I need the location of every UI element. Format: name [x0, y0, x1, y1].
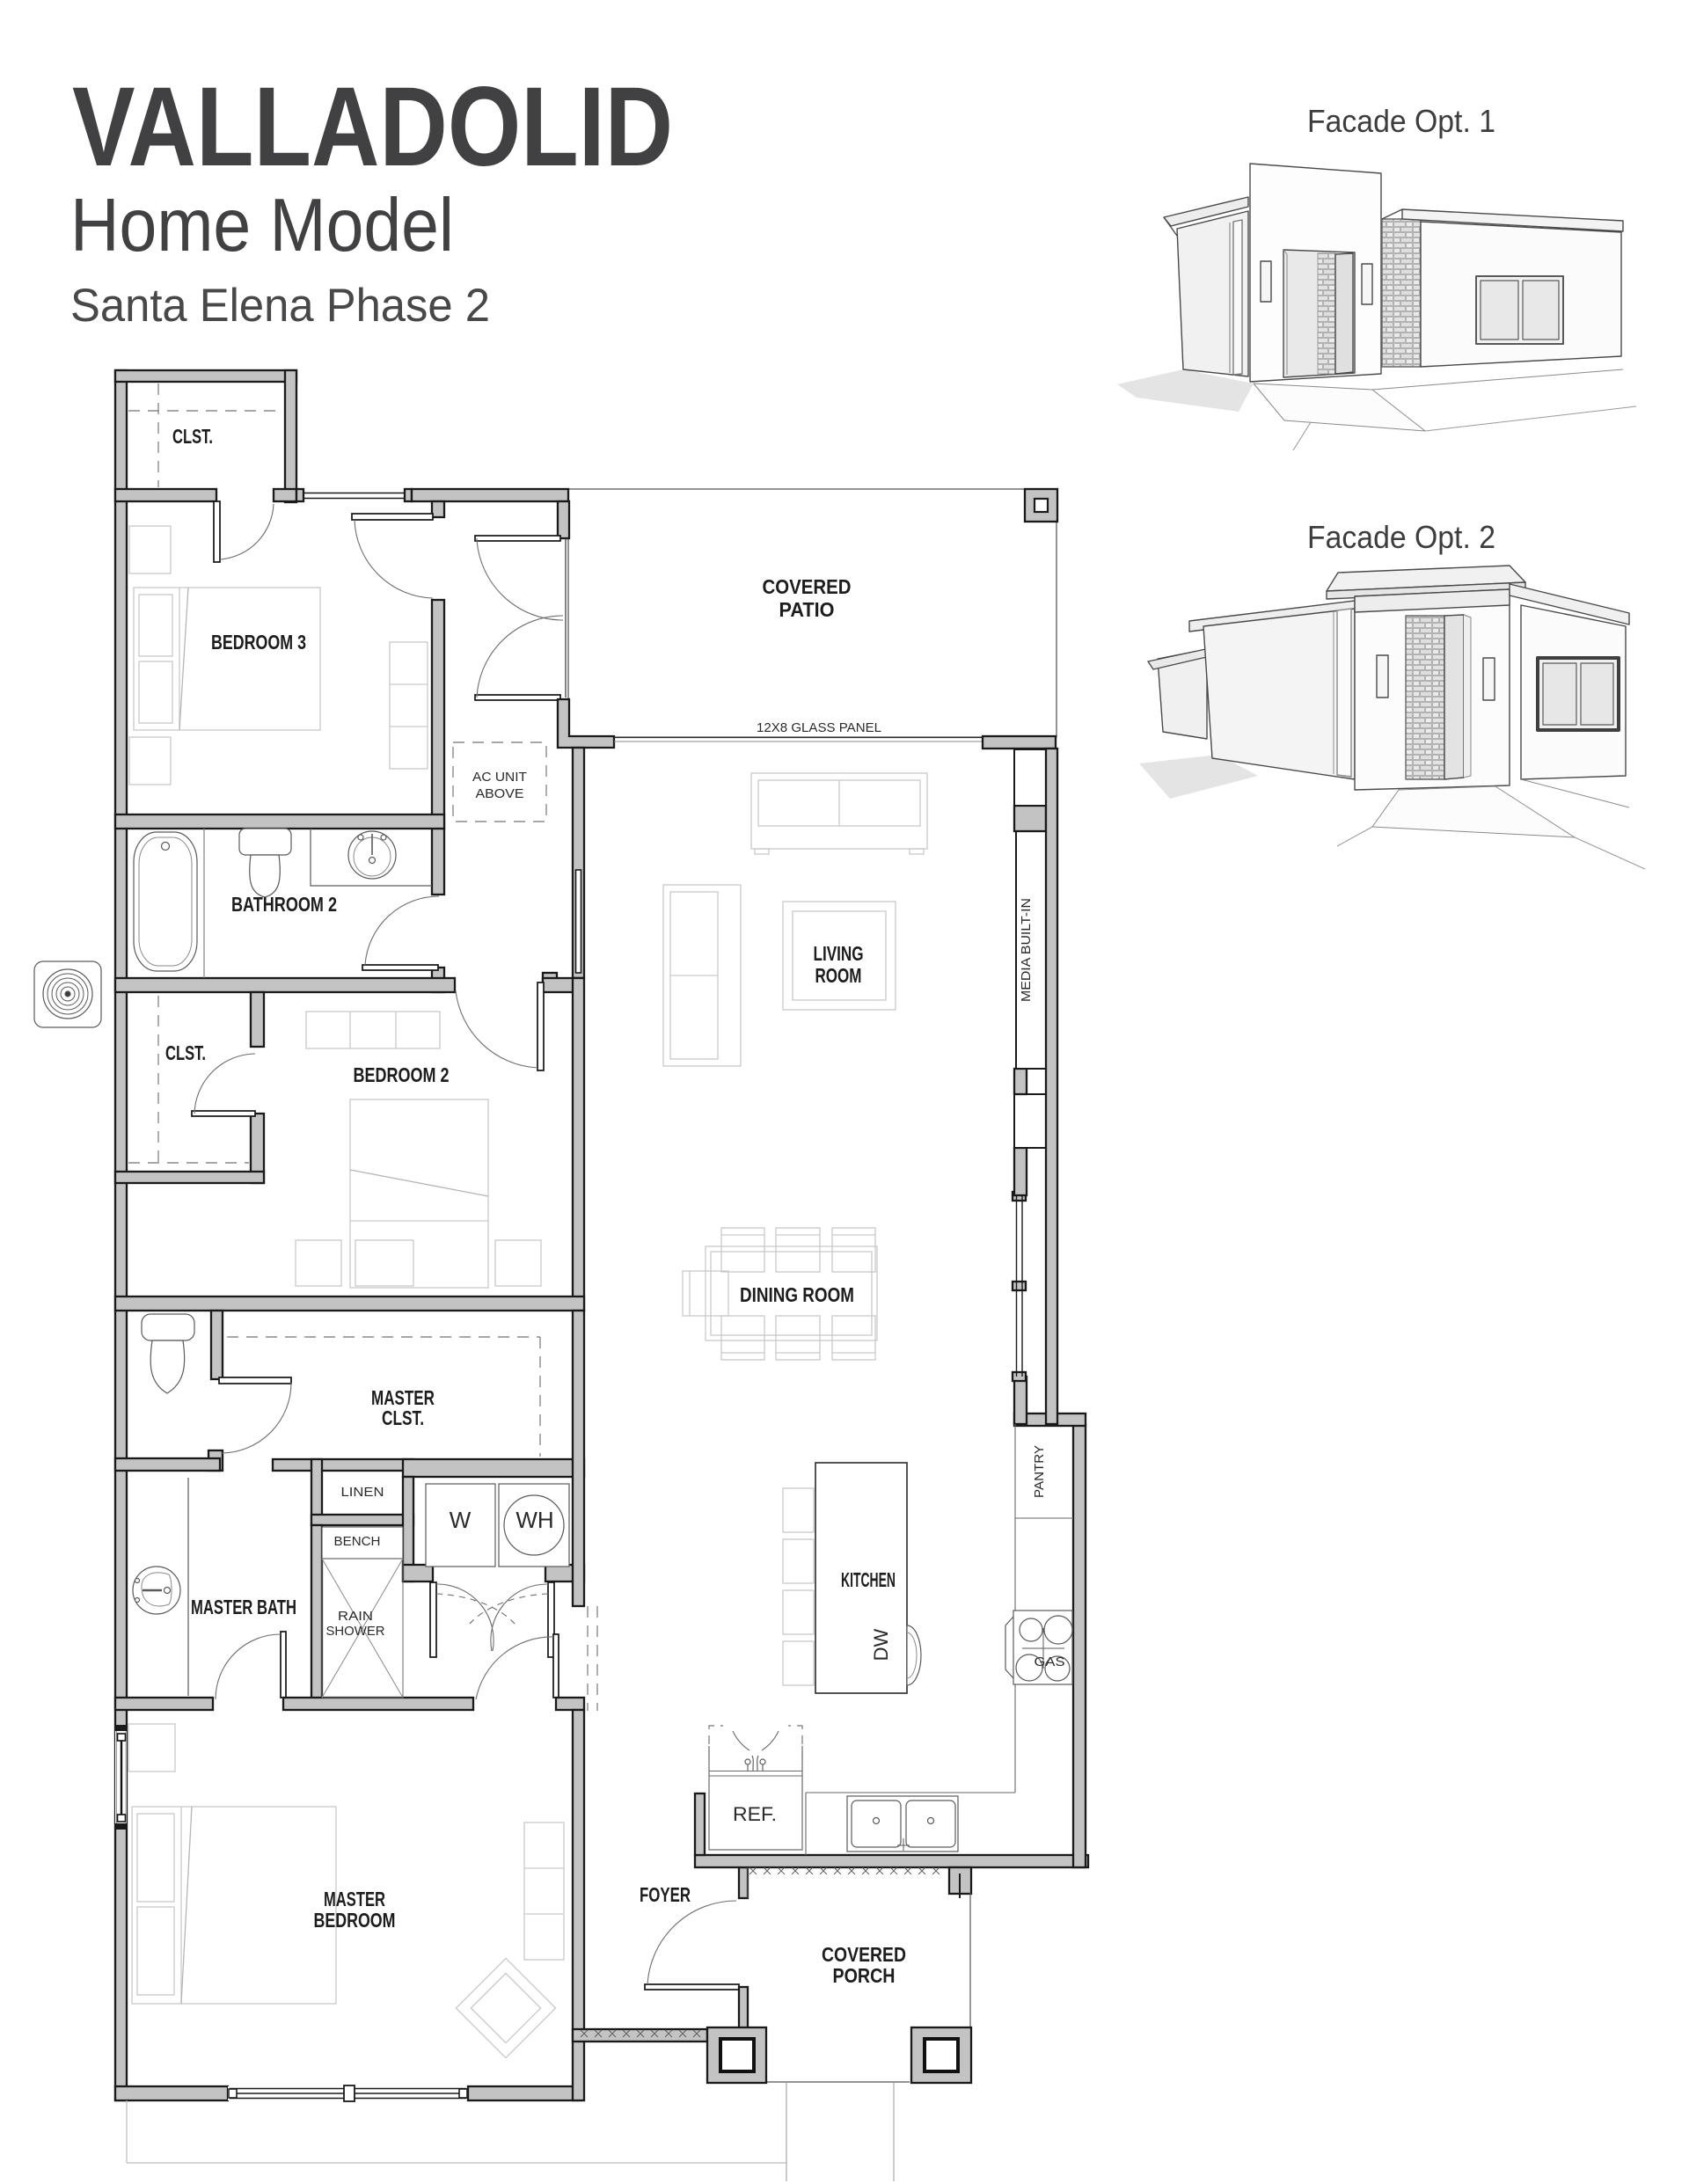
svg-text:CLST.: CLST. [165, 1041, 206, 1064]
svg-text:12X8 GLASS PANEL: 12X8 GLASS PANEL [757, 720, 881, 735]
svg-text:ROOM: ROOM [815, 964, 862, 987]
svg-text:WH: WH [515, 1507, 553, 1533]
svg-text:BATHROOM 2: BATHROOM 2 [231, 893, 337, 916]
svg-text:COVERED: COVERED [822, 1943, 906, 1966]
svg-text:CLST.: CLST. [382, 1406, 424, 1429]
svg-text:Facade Opt. 2: Facade Opt. 2 [1307, 519, 1495, 555]
svg-text:DINING ROOM: DINING ROOM [740, 1283, 854, 1306]
svg-text:FOYER: FOYER [640, 1883, 691, 1906]
svg-text:Home Model: Home Model [70, 184, 454, 267]
svg-text:BEDROOM 2: BEDROOM 2 [354, 1063, 450, 1086]
svg-text:GAS: GAS [1035, 1654, 1065, 1669]
svg-text:MASTER BATH: MASTER BATH [191, 1596, 296, 1618]
svg-text:Facade Opt. 1: Facade Opt. 1 [1307, 103, 1495, 139]
svg-text:MEDIA BUILT-IN: MEDIA BUILT-IN [1019, 898, 1034, 1002]
svg-text:BENCH: BENCH [334, 1534, 381, 1549]
svg-text:KITCHEN: KITCHEN [841, 1568, 896, 1591]
svg-text:LINEN: LINEN [341, 1485, 384, 1500]
svg-text:Santa Elena Phase 2: Santa Elena Phase 2 [70, 280, 490, 332]
svg-text:DW: DW [870, 1628, 892, 1661]
svg-text:PANTRY: PANTRY [1032, 1445, 1047, 1498]
svg-text:PORCH: PORCH [833, 1964, 896, 1987]
svg-text:SHOWER: SHOWER [326, 1624, 385, 1639]
svg-text:AC UNIT: AC UNIT [472, 770, 527, 785]
svg-text:VALLADOLID: VALLADOLID [72, 64, 673, 190]
svg-text:REF.: REF. [733, 1803, 777, 1825]
svg-text:W: W [450, 1507, 472, 1533]
svg-text:LIVING: LIVING [814, 942, 864, 965]
svg-text:MASTER: MASTER [324, 1888, 385, 1910]
svg-text:BEDROOM 3: BEDROOM 3 [211, 631, 306, 654]
svg-text:COVERED: COVERED [763, 575, 852, 598]
svg-text:ABOVE: ABOVE [476, 786, 524, 801]
svg-text:CLST.: CLST. [172, 425, 213, 448]
svg-text:BEDROOM: BEDROOM [314, 1909, 396, 1932]
svg-text:PATIO: PATIO [779, 598, 835, 621]
svg-text:RAIN: RAIN [338, 1609, 373, 1624]
